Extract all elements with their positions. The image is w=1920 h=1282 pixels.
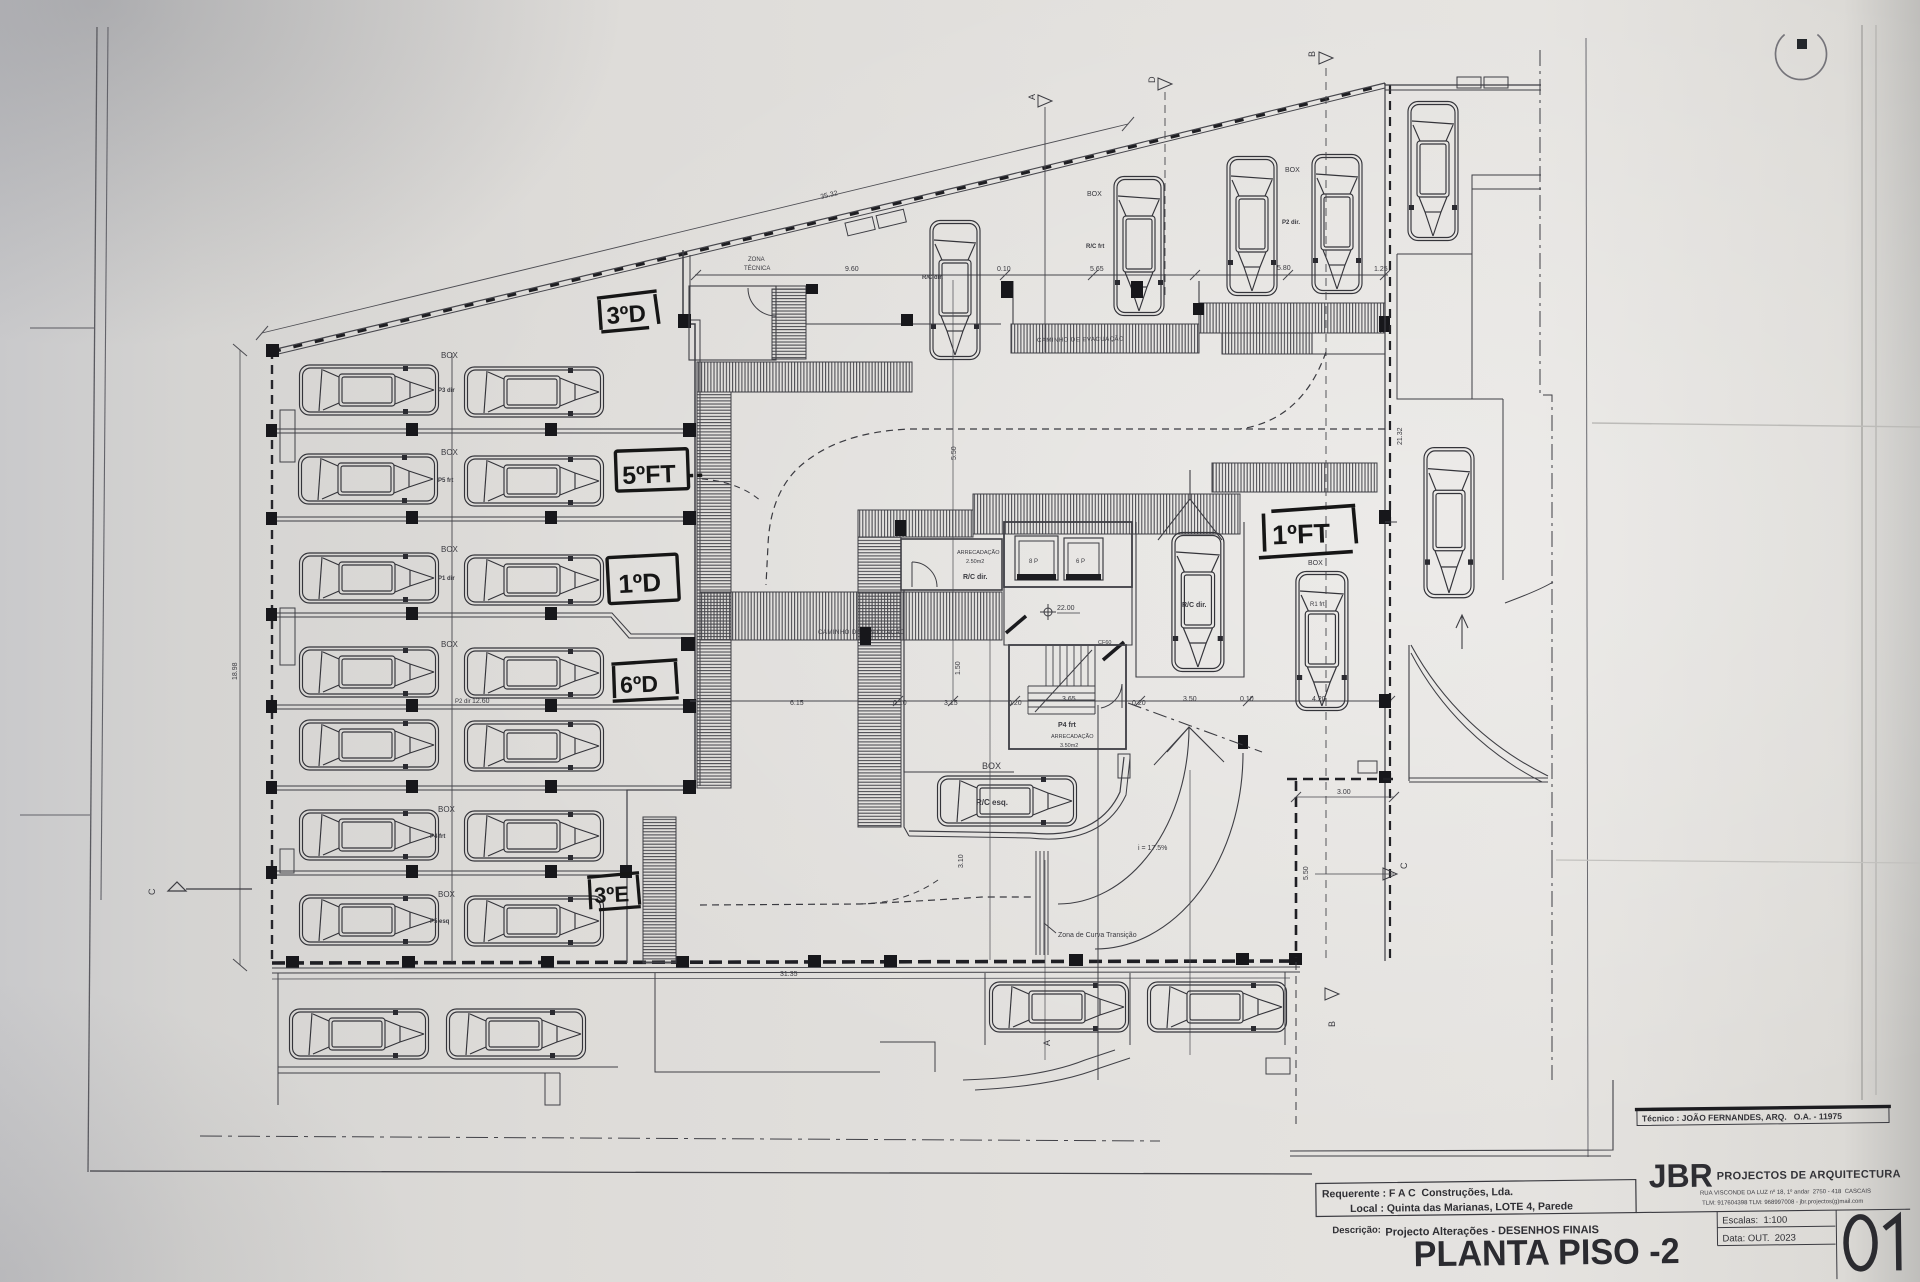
svg-text:Técnico : JOÃO FERNANDES, ARQ.: Técnico : JOÃO FERNANDES, ARQ. O.A. - 11…: [1642, 1111, 1842, 1123]
svg-text:6.15: 6.15: [790, 700, 804, 707]
svg-text:BOX: BOX: [441, 640, 459, 649]
svg-text:0.10: 0.10: [1240, 696, 1254, 703]
svg-text:D: D: [1147, 76, 1157, 83]
svg-text:P1 dir: P1 dir: [438, 576, 455, 582]
svg-text:PLANTA PISO -2: PLANTA PISO -2: [1413, 1230, 1679, 1274]
svg-text:2.50m2: 2.50m2: [966, 559, 984, 565]
svg-text:B: B: [1307, 51, 1317, 57]
svg-text:6 P: 6 P: [1076, 559, 1085, 565]
svg-text:R/C dir.: R/C dir.: [1182, 602, 1207, 609]
svg-text:BOX: BOX: [438, 890, 456, 899]
svg-text:3.50: 3.50: [1183, 696, 1197, 703]
svg-text:ARRECADAÇÃO: ARRECADAÇÃO: [957, 549, 1000, 556]
svg-text:Escalas: 1:100: Escalas: 1:100: [1722, 1215, 1787, 1227]
svg-text:C: C: [147, 888, 157, 895]
svg-text:ARRECADAÇÃO: ARRECADAÇÃO: [1051, 733, 1094, 740]
svg-text:3ºD: 3ºD: [606, 300, 647, 330]
svg-text:0.20: 0.20: [1132, 700, 1146, 707]
svg-text:R/C dir.: R/C dir.: [963, 574, 988, 581]
svg-text:BOX: BOX: [441, 448, 459, 457]
svg-text:35.32: 35.32: [820, 190, 839, 201]
svg-text:R/C esq.: R/C esq.: [976, 798, 1008, 807]
svg-text:22.00: 22.00: [1057, 605, 1075, 612]
svg-text:BOX: BOX: [1308, 560, 1323, 567]
svg-text:B: B: [1327, 1021, 1337, 1027]
svg-text:0.10: 0.10: [997, 266, 1011, 273]
svg-text:1.25: 1.25: [1374, 266, 1388, 273]
svg-text:RUA VISCONDE DA LUZ nº 18, 1º: RUA VISCONDE DA LUZ nº 18, 1º andar 2750…: [1700, 1188, 1871, 1197]
svg-text:P4 frt: P4 frt: [1058, 722, 1077, 729]
svg-text:PROJECTOS DE ARQUITECTURA: PROJECTOS DE ARQUITECTURA: [1717, 1168, 1901, 1182]
svg-text:Data: OUT. 2023: Data: OUT. 2023: [1722, 1233, 1796, 1245]
svg-text:BOX: BOX: [441, 351, 459, 360]
svg-text:Descrição:: Descrição:: [1332, 1225, 1381, 1237]
svg-text:P4 frt: P4 frt: [430, 834, 445, 840]
svg-text:P5 esq: P5 esq: [430, 919, 450, 925]
svg-text:6ºD: 6ºD: [620, 671, 659, 698]
svg-text:R/C dir.: R/C dir.: [922, 275, 943, 281]
svg-text:0.10: 0.10: [893, 700, 907, 707]
svg-text:5.80: 5.80: [1277, 265, 1291, 272]
svg-text:TLM: 917604398 TLM: 968997008: TLM: 917604398 TLM: 968997008 - jbr.proj…: [1702, 1199, 1863, 1207]
svg-text:3.00: 3.00: [1337, 789, 1351, 796]
svg-text:P3 dir: P3 dir: [438, 388, 455, 394]
svg-text:8 P: 8 P: [1029, 559, 1038, 565]
svg-text:R1 frt: R1 frt: [1310, 602, 1325, 608]
svg-text:3ºE: 3ºE: [594, 881, 630, 908]
svg-text:3.15: 3.15: [944, 700, 958, 707]
svg-text:P5 frt: P5 frt: [438, 478, 453, 484]
svg-text:9.60: 9.60: [845, 266, 859, 273]
svg-text:P2 dir.: P2 dir.: [1282, 220, 1300, 226]
svg-text:5.50: 5.50: [1303, 866, 1310, 880]
svg-text:1ºD: 1ºD: [618, 567, 662, 599]
svg-text:P2 dir: P2 dir: [455, 699, 471, 705]
svg-text:1.50: 1.50: [955, 661, 962, 675]
svg-text:BOX: BOX: [1285, 167, 1300, 174]
svg-text:ZONA: ZONA: [748, 257, 765, 263]
svg-text:5.65: 5.65: [1090, 266, 1104, 273]
svg-text:12.60: 12.60: [472, 698, 490, 705]
svg-text:C: C: [1399, 862, 1409, 869]
svg-text:R/C frt: R/C frt: [1086, 244, 1104, 250]
svg-text:A: A: [1042, 1040, 1052, 1046]
svg-text:5ºFT: 5ºFT: [622, 460, 677, 490]
svg-text:0.20: 0.20: [1008, 700, 1022, 707]
svg-text:i = 17.5%: i = 17.5%: [1138, 845, 1167, 852]
svg-text:BOX: BOX: [1087, 191, 1102, 198]
svg-text:21.32: 21.32: [1397, 427, 1404, 445]
svg-text:3.65: 3.65: [1062, 696, 1076, 703]
svg-text:18.98: 18.98: [232, 662, 239, 680]
svg-text:Zona de Curva Transição: Zona de Curva Transição: [1058, 932, 1137, 939]
svg-text:Requerente : F A C Construçõe: Requerente : F A C Construções, Lda.: [1322, 1186, 1513, 1200]
svg-text:Local : Quinta das Marianas, L: Local : Quinta das Marianas, LOTE 4, Par…: [1350, 1200, 1573, 1215]
svg-text:3.10: 3.10: [958, 854, 965, 868]
svg-text:BOX: BOX: [438, 805, 456, 814]
svg-text:1ºFT: 1ºFT: [1272, 518, 1331, 550]
svg-text:3.50m2: 3.50m2: [1060, 743, 1078, 749]
svg-text:5.50: 5.50: [951, 446, 958, 460]
svg-text:BOX: BOX: [982, 761, 1001, 771]
svg-text:A: A: [1027, 94, 1037, 100]
svg-text:JBR: JBR: [1648, 1157, 1713, 1195]
svg-text:TÉCNICA: TÉCNICA: [744, 265, 770, 272]
svg-text:BOX: BOX: [441, 545, 459, 554]
